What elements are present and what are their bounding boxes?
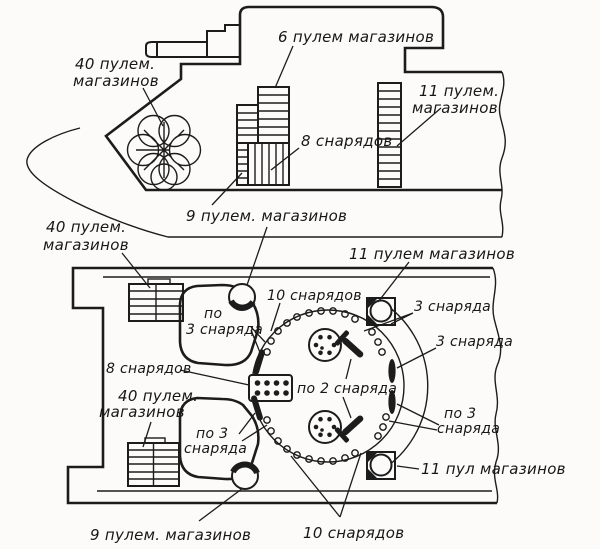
plan-view: 40 пулем. магазинов 11 пулем магазинов 1… [43, 218, 566, 544]
shell-mark-right-1 [388, 359, 395, 383]
label-11-mg-bottom: 11 пул магазинов [421, 460, 566, 478]
diagram-page: 40 пулем. магазинов 6 пулем магазинов 11… [0, 0, 600, 549]
hatch-bottom-left [232, 463, 258, 489]
label-11-mg-line1: 11 пулем. [419, 82, 499, 100]
label-per3-right-line2: снаряда [437, 421, 500, 437]
tank-ammo-diagram: 40 пулем. магазинов 6 пулем магазинов 11… [0, 0, 600, 549]
gun-mantlet [207, 25, 240, 57]
label-8-shells-plan: 8 снарядов [106, 361, 192, 377]
label-per3-bottom-line2: снаряда [184, 441, 247, 457]
label-per3-bottom-line1: по 3 [196, 426, 228, 442]
label-40-mg-bottom-line2: магазинов [99, 403, 185, 421]
hatch-top-left [229, 284, 255, 310]
label-10-shells-bottom: 10 снарядов [303, 524, 404, 542]
mg-stack-9 [237, 143, 248, 185]
break-line-side [499, 72, 505, 237]
gun-barrel [146, 25, 240, 57]
shell-group-bottom-right-3 [375, 414, 389, 439]
mg-stack-6 [258, 87, 289, 143]
label-40-mg-top-line1: 40 пулем. [46, 218, 126, 236]
label-8-shells-side: 8 снарядов [301, 132, 393, 150]
label-40-mg-line2: магазинов [73, 72, 159, 90]
label-3-shells-1: 3 снаряда [414, 299, 491, 315]
label-6-mg: 6 пулем магазинов [278, 28, 434, 46]
label-9-mg-bottom: 9 пулем. магазинов [90, 526, 251, 544]
ammo-drum-upper [309, 329, 341, 361]
label-per2-shells: по 2 снаряда [297, 381, 397, 397]
shell-mark-left-top [252, 349, 265, 376]
label-40-mg-line1: 40 пулем. [75, 55, 155, 73]
label-3-shells-2: 3 снаряда [436, 334, 513, 350]
ammo-drum-lower [309, 411, 341, 443]
label-9-mg-side: 9 пулем. магазинов [186, 207, 347, 225]
label-40-mg-top-line2: магазинов [43, 236, 129, 254]
mg-grid-bottom-40 [128, 438, 179, 486]
mount-bottom-right [367, 452, 395, 479]
label-per3-right-line1: по 3 [444, 406, 476, 422]
label-11-mg-top: 11 пулем магазинов [349, 245, 515, 263]
label-10-shells-top: 10 снарядов [267, 288, 362, 304]
mg-stack-mid [237, 105, 258, 143]
label-11-mg-line2: магазинов [412, 99, 498, 117]
label-per3-top-line1: по [204, 306, 222, 322]
shell-rack-8 [248, 143, 289, 185]
hull-front-outline [106, 58, 502, 190]
mg-grid-top-40 [129, 279, 183, 321]
label-per3-top-line2: 3 снаряда [186, 322, 263, 338]
